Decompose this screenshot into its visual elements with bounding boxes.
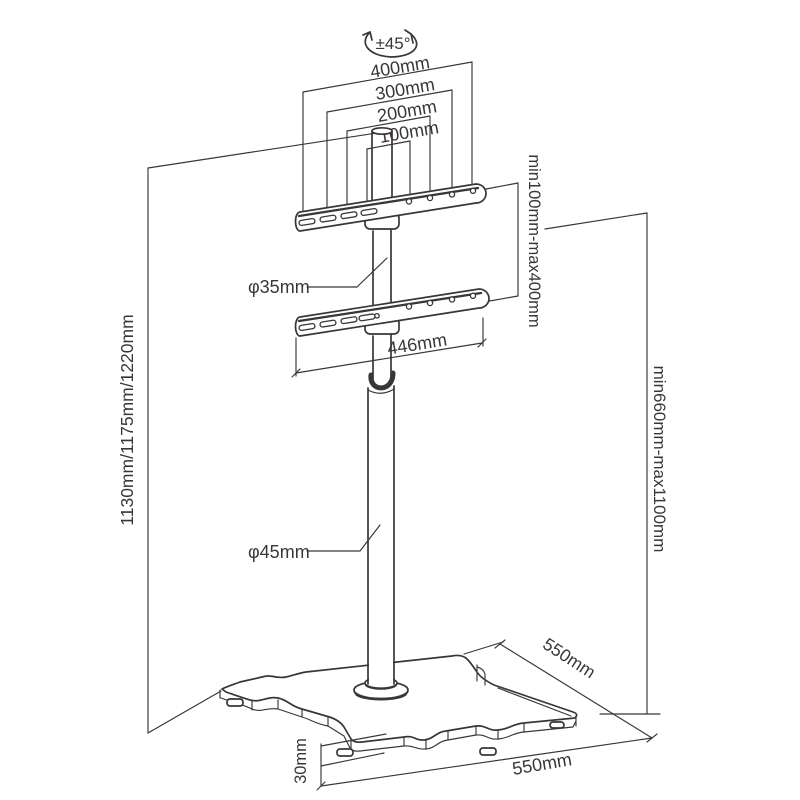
pole-upper-diameter-leader — [307, 258, 387, 287]
top-vesa-bracket — [296, 184, 487, 231]
base-foot — [227, 699, 243, 706]
base-depth-label: 550mm — [539, 634, 599, 683]
base-foot — [480, 748, 496, 755]
base-width-label: 550mm — [511, 749, 574, 779]
middle-vesa-bracket — [296, 289, 489, 336]
pole-range-dimension — [545, 213, 660, 714]
bracket-range-dimension — [484, 183, 518, 302]
bracket-vertical-range-label: min100mm-max400mm — [525, 154, 543, 327]
base-thickness-label: 30mm — [292, 738, 310, 784]
pole-lower-diameter-label: φ45mm — [248, 542, 310, 562]
pole-height-range-label: min660mm-max1100mm — [650, 366, 669, 553]
middle-bracket-set-screw — [375, 314, 379, 318]
total-height-label: 1130mm/1175mm/1220mm — [117, 314, 137, 525]
cable-clip — [371, 373, 393, 388]
base-plate — [220, 655, 577, 756]
rotation-range-label: ±45° — [375, 34, 410, 53]
diagram-page: ±45° 400mm 300mm 200mm 100mm 1130mm/1175… — [0, 0, 800, 800]
base-foot — [337, 749, 353, 756]
base-foot — [550, 722, 564, 728]
tv-stand-dimension-diagram: ±45° 400mm 300mm 200mm 100mm 1130mm/1175… — [0, 0, 800, 800]
base-width-dimension — [317, 738, 652, 790]
pole-upper-diameter-label: φ35mm — [248, 277, 310, 297]
